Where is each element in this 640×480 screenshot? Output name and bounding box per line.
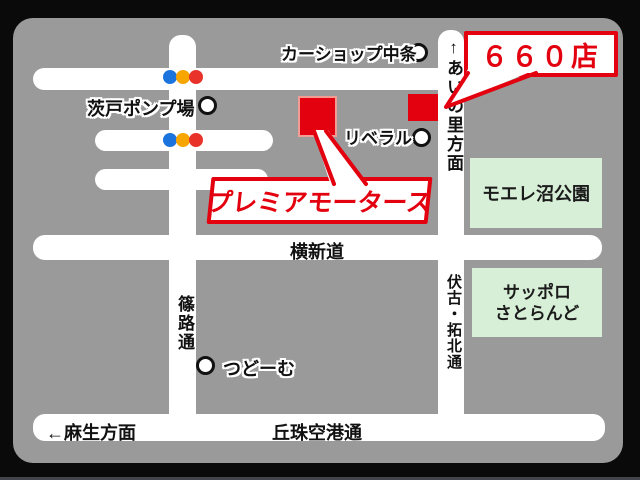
- pump-station-circle-icon: [198, 96, 217, 115]
- traffic-signal-amber-icon: [176, 70, 190, 84]
- dealer-name-callout-label: プレミアモータース: [206, 183, 434, 219]
- traffic-signal-red-icon: [189, 133, 203, 147]
- label-road-okadama-airport: 丘珠空港通: [272, 419, 362, 445]
- label-road-yokoshindo: 横新道: [290, 238, 344, 264]
- label-moere-numa-park: モエレ沼公園: [482, 180, 590, 206]
- label-sapporo-satoland-line1: サッポロ: [503, 282, 571, 303]
- label-tsudome: つどーむ: [223, 355, 295, 381]
- traffic-signal-amber-icon: [176, 133, 190, 147]
- road-top-horizontal: [33, 68, 464, 90]
- tsudome-circle-icon: [196, 356, 215, 375]
- store-660-callout-label: ６６０店: [481, 35, 601, 74]
- traffic-signal-red-icon: [189, 70, 203, 84]
- dealer-name-callout: プレミアモータース: [207, 177, 433, 224]
- liberal-circle-icon: [412, 128, 431, 147]
- store-660-callout: ６６０店: [464, 31, 618, 77]
- sapporo-satoland-block: サッポロ さとらんど: [472, 268, 602, 337]
- store-660-location-marker: [408, 94, 438, 121]
- access-map: カーショップ中条 茨戸ポンプ場 リベラル つどーむ 横新道 丘珠空港通 ←麻生方…: [0, 0, 640, 480]
- dealer-location-marker: [300, 98, 335, 135]
- traffic-signal-blue-icon: [163, 133, 177, 147]
- label-asabu-direction: ←麻生方面: [46, 419, 136, 445]
- label-ainosato-direction: ↑あいの里方面: [441, 38, 466, 173]
- label-road-fushiko-takuhoku: 伏古・拓北通: [443, 274, 464, 370]
- label-road-shinoro: 篠路通: [172, 295, 197, 352]
- traffic-signal-blue-icon: [163, 70, 177, 84]
- map-panel: カーショップ中条 茨戸ポンプ場 リベラル つどーむ 横新道 丘珠空港通 ←麻生方…: [13, 18, 623, 463]
- label-sapporo-satoland-line2: さとらんど: [495, 303, 580, 324]
- label-liberal: リベラル: [344, 124, 412, 149]
- label-car-shop-nakajo: カーショップ中条: [281, 40, 417, 65]
- moere-numa-park-block: モエレ沼公園: [470, 158, 602, 228]
- label-barato-pump-station: 茨戸ポンプ場: [87, 95, 194, 121]
